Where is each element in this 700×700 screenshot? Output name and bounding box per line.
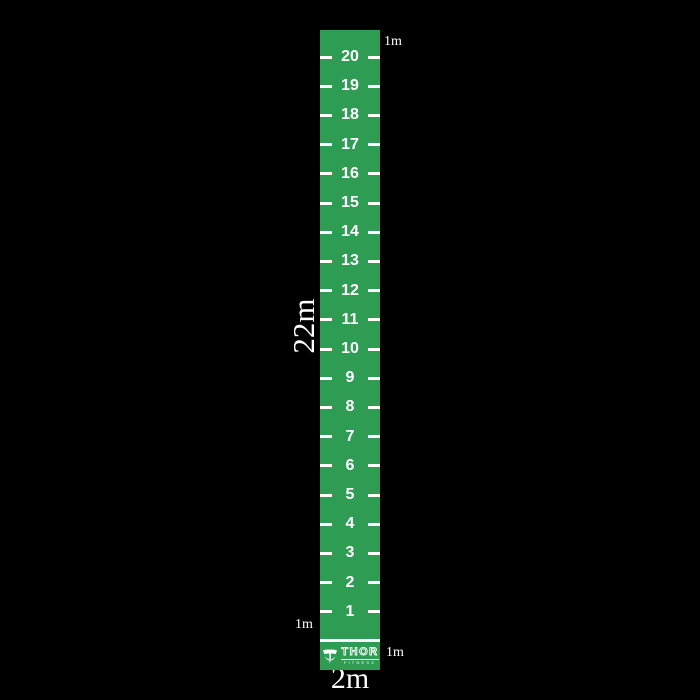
meter-number: 15 [341,195,359,211]
left-tick [320,172,332,175]
meter-mark-row: 5 [320,485,380,505]
meter-mark-row: 16 [320,164,380,184]
left-tick [320,202,332,205]
product-diagram-canvas: 22m 1m 1m 1m 2m 201918171615141312111098… [0,0,700,700]
mat-total-length-label: 22m [288,276,320,376]
thor-logo: THOR FITNESS [320,644,380,668]
meter-mark-row: 6 [320,456,380,476]
left-tick [320,318,332,321]
meter-mark-row: 4 [320,514,380,534]
right-tick [368,464,380,467]
meter-mark-row: 9 [320,368,380,388]
meter-number: 10 [341,341,359,357]
left-tick [320,348,332,351]
right-tick [368,552,380,555]
meter-mark-row: 14 [320,222,380,242]
meter-number: 1 [346,604,355,620]
meter-number: 14 [341,224,359,240]
meter-number: 11 [342,312,359,328]
right-tick [368,172,380,175]
sprint-track-mat: 2019181716151413121110987654321 THOR FIT… [320,30,380,670]
left-tick [320,494,332,497]
meter-mark-row: 8 [320,397,380,417]
right-tick [368,143,380,146]
right-tick [368,289,380,292]
right-tick [368,318,380,321]
right-tick [368,348,380,351]
right-tick [368,523,380,526]
left-tick [320,377,332,380]
meter-number: 9 [346,370,355,386]
top-meter-segment-label: 1m [384,35,402,49]
left-tick [320,435,332,438]
left-tick [320,406,332,409]
meter-mark-row: 17 [320,135,380,155]
meter-mark-row: 13 [320,251,380,271]
meter-mark-row: 2 [320,573,380,593]
meter-number: 5 [346,487,355,503]
meter-mark-row: 10 [320,339,380,359]
left-tick [320,523,332,526]
meter-number: 3 [346,545,355,561]
meter-number: 20 [341,49,359,65]
meter-number: 16 [341,166,359,182]
right-tick [368,114,380,117]
right-tick [368,406,380,409]
right-tick [368,260,380,263]
left-tick [320,260,332,263]
right-tick [368,85,380,88]
meter-number: 2 [346,575,355,591]
bottom-left-meter-segment-label: 1m [295,618,313,632]
left-tick [320,85,332,88]
right-tick [368,202,380,205]
meter-number: 7 [346,429,355,445]
meter-mark-row: 15 [320,193,380,213]
meter-mark-row: 7 [320,427,380,447]
meter-mark-row: 19 [320,76,380,96]
thor-brand-label: THOR [341,647,378,660]
right-tick [368,435,380,438]
right-tick [368,494,380,497]
left-tick [320,610,332,613]
right-tick [368,610,380,613]
meter-mark-row: 11 [320,310,380,330]
left-tick [320,552,332,555]
thor-hammer-icon [321,648,339,665]
meter-number: 13 [341,253,359,269]
left-tick [320,56,332,59]
right-tick [368,56,380,59]
thor-logo-text: THOR FITNESS [341,647,378,665]
thor-subtext-label: FITNESS [344,661,376,665]
left-tick [320,114,332,117]
meter-mark-row: 1 [320,602,380,622]
right-tick [368,377,380,380]
meter-number: 18 [341,107,359,123]
left-tick [320,231,332,234]
left-tick [320,581,332,584]
meter-number: 12 [341,283,359,299]
meter-mark-row: 20 [320,47,380,67]
bottom-right-meter-segment-label: 1m [386,646,404,660]
right-tick [368,581,380,584]
meter-number: 17 [341,137,359,153]
left-tick [320,289,332,292]
meter-number: 8 [346,399,355,415]
meter-mark-row: 18 [320,105,380,125]
left-tick [320,143,332,146]
meter-number: 4 [346,516,355,532]
meter-mark-row: 3 [320,543,380,563]
meter-number: 19 [341,78,359,94]
baseline-divider [320,639,380,642]
left-tick [320,464,332,467]
meter-number: 6 [346,458,355,474]
right-tick [368,231,380,234]
meter-mark-row: 12 [320,281,380,301]
